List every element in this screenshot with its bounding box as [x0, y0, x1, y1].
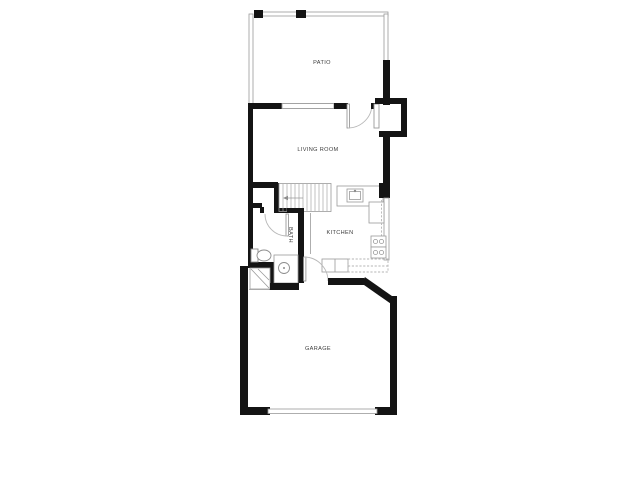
patio-area: PATIO — [249, 10, 390, 105]
bath-wall-right — [298, 208, 304, 283]
garage-wall-left — [240, 266, 248, 415]
front-door-swing-arc — [348, 104, 372, 128]
living-room-label: LIVING ROOM — [297, 147, 338, 153]
patio-post-mid — [296, 10, 306, 18]
garage-wall-right — [390, 296, 397, 415]
stairs-wall-top — [248, 182, 278, 188]
garage-wall-top-left — [270, 283, 299, 290]
garage-overhead-door — [268, 409, 377, 414]
patio-label: PATIO — [313, 60, 331, 66]
living-room-wall-right — [383, 131, 390, 184]
garage-entry-door-leaf — [304, 257, 306, 281]
patio-fence-top — [255, 12, 388, 16]
patio-fence-left — [249, 14, 253, 105]
living-room-wall-top-left — [248, 103, 282, 109]
bath-door-swing-arc — [265, 214, 287, 236]
garage-label: GARAGE — [305, 346, 331, 352]
bath-area: BATH — [248, 203, 304, 290]
toilet-bowl — [257, 250, 271, 261]
entry-nook-wall-right — [401, 103, 407, 137]
kitchen-label: KITCHEN — [326, 230, 353, 236]
garage-wall-top-right — [328, 278, 364, 285]
bath-door-post-left — [260, 207, 264, 213]
living-room-window — [282, 104, 334, 109]
kitchen-wall-top-right — [379, 183, 390, 198]
entry-sidelite-window — [374, 104, 379, 128]
stairs-treads — [283, 184, 327, 211]
front-door-leaf — [347, 104, 349, 128]
floor-plan-canvas: PATIO LIVING ROOM — [0, 0, 640, 480]
kitchen-faucet — [354, 190, 356, 192]
garage-wall-bottom-left — [240, 407, 270, 415]
stairs-direction-arrow — [283, 196, 288, 200]
kitchen-bottom-counter-dashed — [348, 259, 388, 272]
patio-post-left — [254, 10, 263, 18]
bath-label: BATH — [287, 227, 293, 243]
garage-chamfer-wall — [363, 280, 393, 301]
floor-plan-drawing: PATIO LIVING ROOM — [0, 0, 640, 480]
bath-wall-top — [248, 203, 262, 208]
living-room-wall-top-mid — [334, 103, 348, 109]
kitchen-area: KITCHEN — [311, 183, 391, 272]
garage-wall-bottom-right — [375, 407, 397, 415]
bath-sink-drain — [283, 267, 285, 269]
patio-fence-right — [384, 14, 388, 62]
